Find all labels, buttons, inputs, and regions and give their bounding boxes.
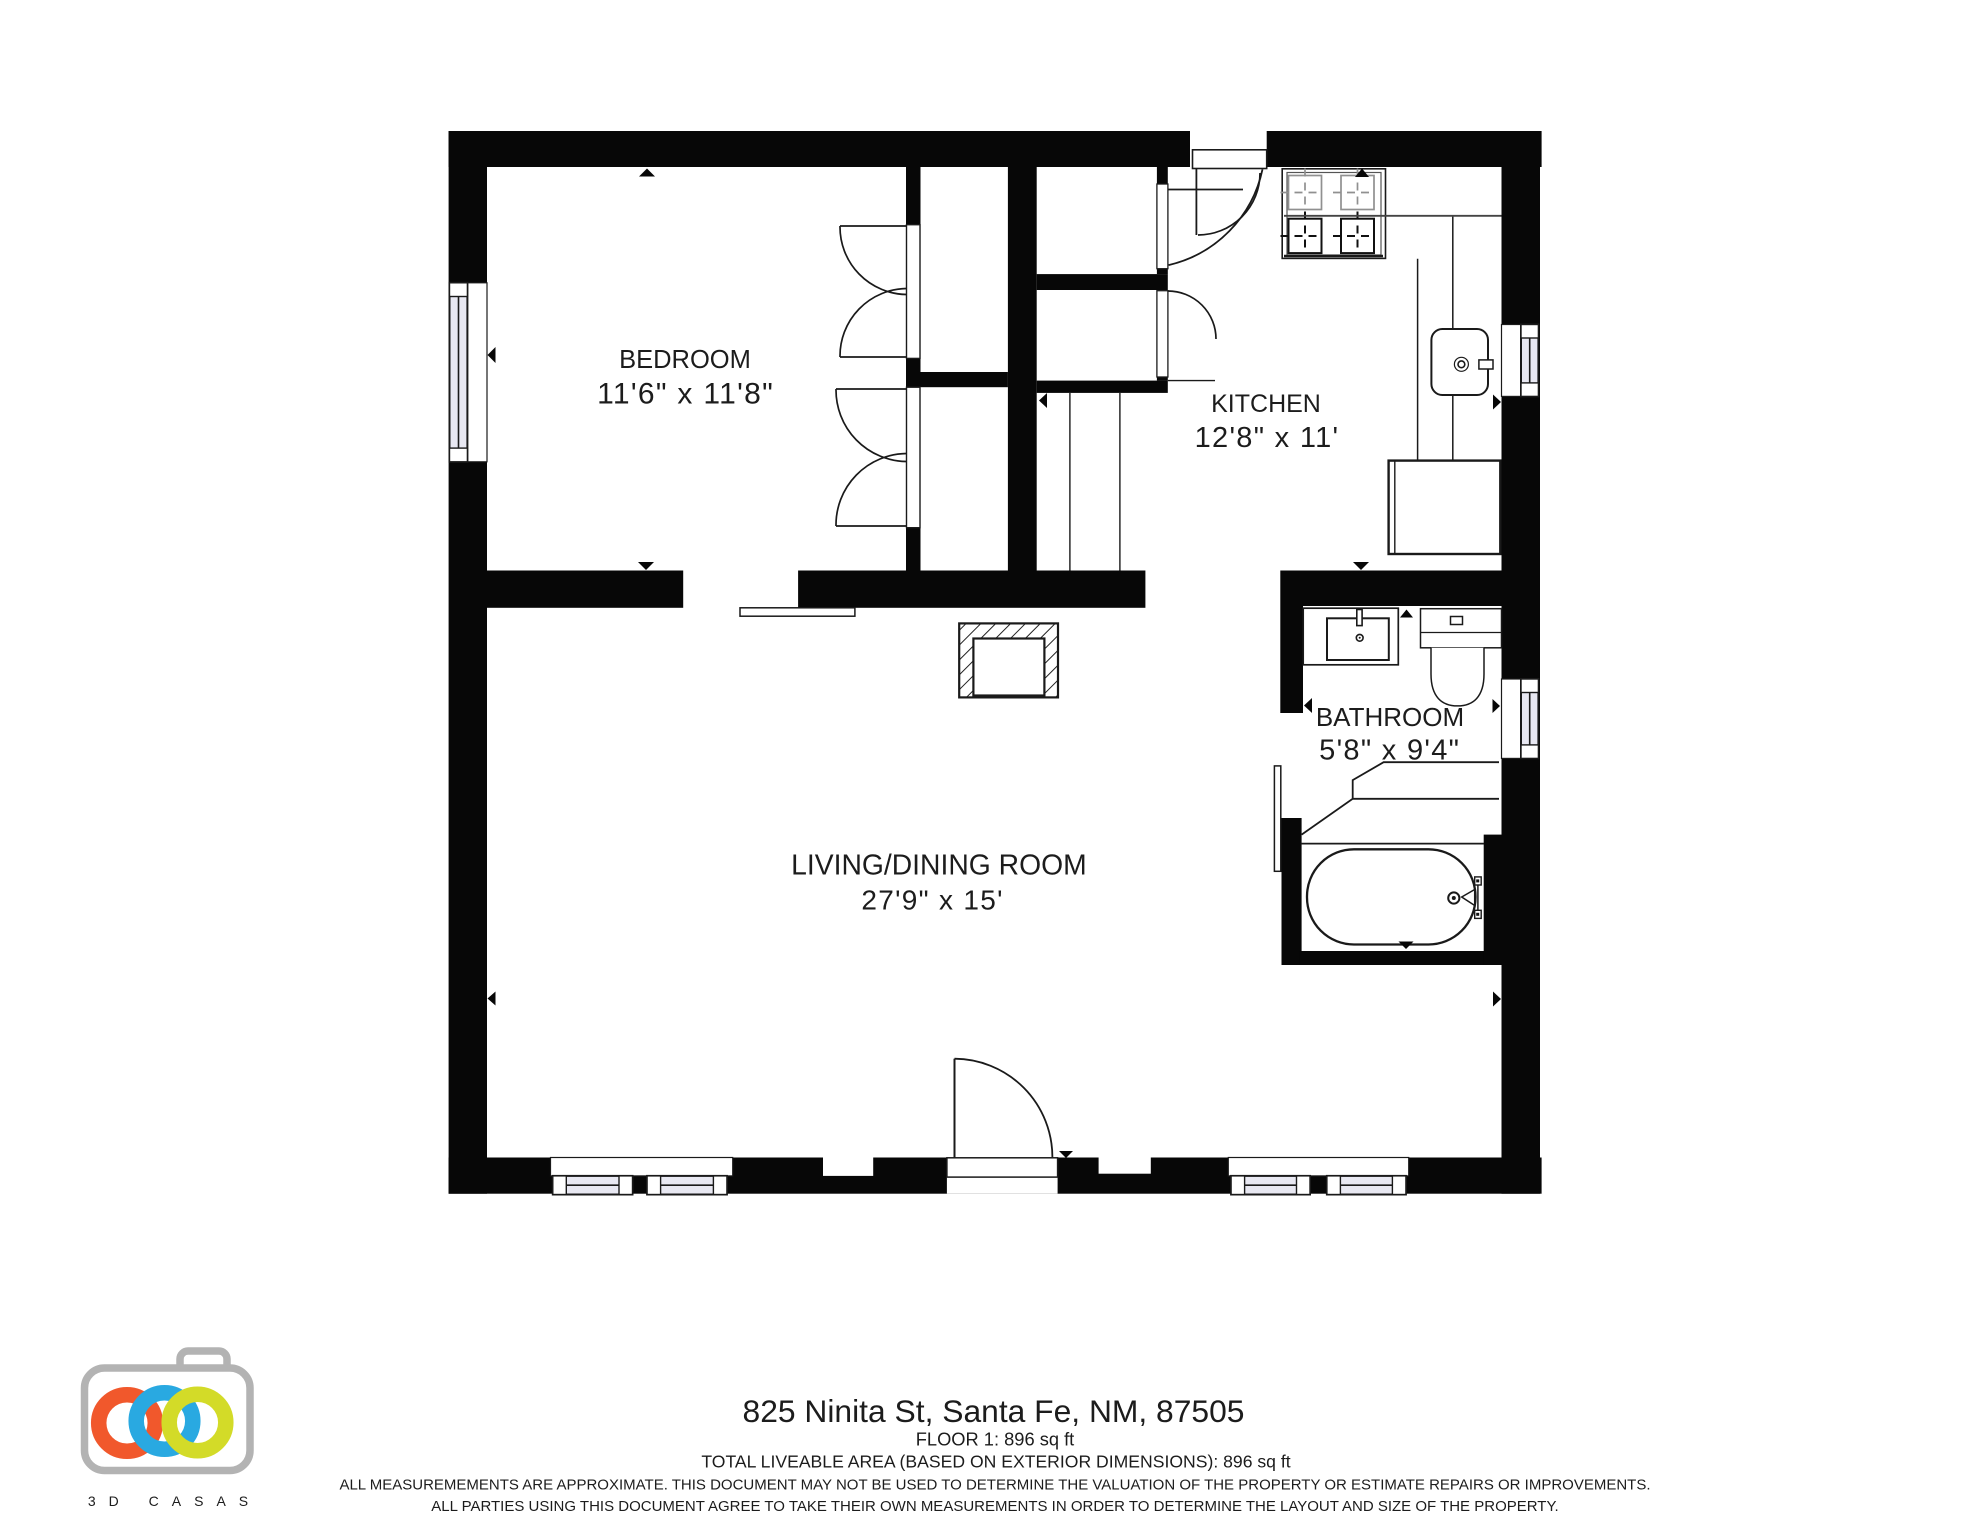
svg-text:5'8" x 9'4": 5'8" x 9'4" <box>1319 735 1460 767</box>
svg-text:12'8" x 11': 12'8" x 11' <box>1195 422 1340 454</box>
svg-text:KITCHEN: KITCHEN <box>1211 390 1321 418</box>
svg-text:11'6" x 11'8": 11'6" x 11'8" <box>597 378 774 411</box>
svg-text:FLOOR 1: 896 sq ft: FLOOR 1: 896 sq ft <box>916 1429 1075 1450</box>
svg-text:BATHROOM: BATHROOM <box>1316 702 1464 732</box>
svg-text:27'9" x 15': 27'9" x 15' <box>861 885 1003 916</box>
svg-text:LIVING/DINING ROOM: LIVING/DINING ROOM <box>791 848 1087 880</box>
svg-text:TOTAL LIVEABLE AREA (BASED ON: TOTAL LIVEABLE AREA (BASED ON EXTERIOR D… <box>701 1452 1290 1472</box>
svg-text:ALL MEASUREMEMENTS ARE APPROXI: ALL MEASUREMEMENTS ARE APPROXIMATE. THIS… <box>339 1477 1650 1494</box>
svg-text:825 Ninita St, Santa Fe, NM, 8: 825 Ninita St, Santa Fe, NM, 87505 <box>743 1393 1245 1429</box>
svg-text:BEDROOM: BEDROOM <box>619 346 751 374</box>
svg-text:ALL PARTIES USING THIS DOCUMEN: ALL PARTIES USING THIS DOCUMENT AGREE TO… <box>431 1498 1558 1515</box>
svg-text:3D CASAS: 3D CASAS <box>88 1493 261 1509</box>
